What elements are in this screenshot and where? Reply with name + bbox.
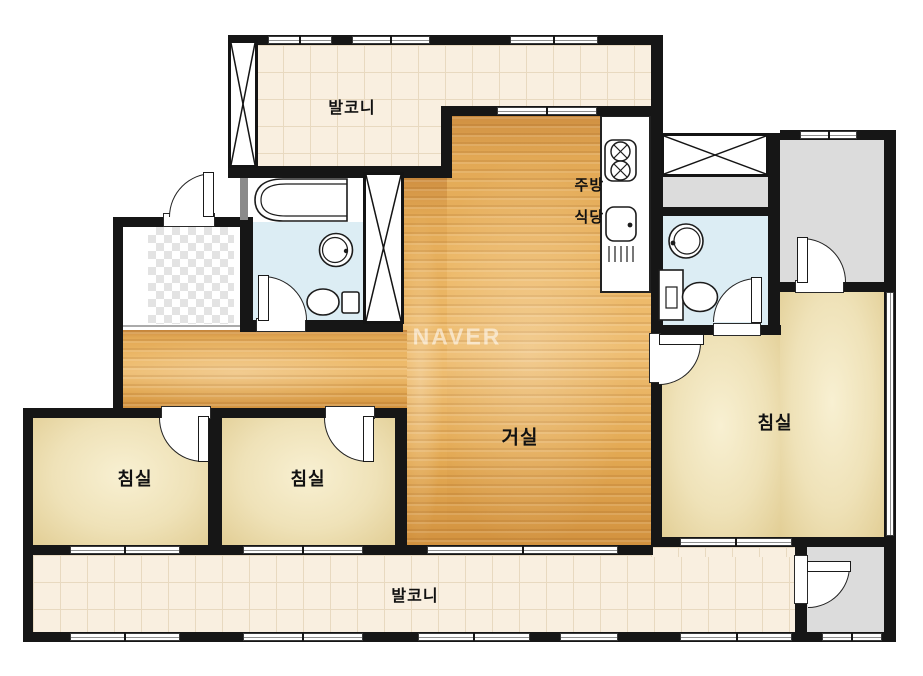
window <box>560 633 618 641</box>
window-mullion <box>851 633 853 641</box>
entry-floor-edge <box>123 325 241 327</box>
bathroom1-tub-area <box>253 176 363 222</box>
door-frame <box>713 323 761 336</box>
room-label-bedroom-center: 침실 <box>290 465 325 491</box>
window-mullion <box>299 36 301 44</box>
balcony-bottom-floor-step <box>651 547 795 557</box>
door-leaf <box>203 172 214 217</box>
window-mullion <box>124 546 126 554</box>
window-mullion <box>302 633 304 641</box>
window-mullion <box>736 633 738 641</box>
floor-plan: 발코니 주방 식당 거실 침실 침실 침실 발코니 NAVER <box>0 0 923 676</box>
room-label-balcony-bottom: 발코니 <box>391 582 438 606</box>
room-label-bedroom-left: 침실 <box>117 465 152 491</box>
window-mullion <box>124 633 126 641</box>
wall <box>23 408 33 642</box>
wall <box>651 35 663 335</box>
door-leaf <box>363 416 374 462</box>
utility-strip-floor <box>661 175 768 209</box>
door-leaf <box>797 237 808 283</box>
kitchen-counter <box>600 115 651 293</box>
wall <box>395 408 407 555</box>
window-mullion <box>553 36 555 44</box>
room-label-living: 거실 <box>502 423 539 450</box>
room-label-bedroom-right: 침실 <box>757 409 792 435</box>
door-leaf <box>198 416 209 462</box>
door-frame <box>794 555 808 604</box>
hall-floor <box>123 330 407 408</box>
door-leaf <box>258 275 269 321</box>
wall <box>768 133 780 335</box>
window-mullion <box>473 633 475 641</box>
wall-gray-segment <box>240 178 248 220</box>
entry-tile-floor <box>148 227 234 324</box>
door-leaf <box>659 334 704 345</box>
window-mullion <box>735 538 737 546</box>
wall <box>661 207 768 216</box>
wall <box>651 379 662 547</box>
wall <box>228 166 447 178</box>
naver-watermark: NAVER <box>413 324 502 351</box>
duct-x-icon <box>228 40 258 168</box>
room-label-balcony-top: 발코니 <box>328 94 375 118</box>
wall <box>222 408 407 418</box>
window <box>886 292 894 536</box>
room-label-kitchen: 주방 식당 <box>554 162 604 242</box>
window-mullion <box>546 107 548 115</box>
wall <box>441 106 452 178</box>
window-mullion <box>828 131 830 139</box>
window-mullion <box>390 36 392 44</box>
living-room-floor-left <box>403 178 447 545</box>
duct-x-icon <box>363 172 404 324</box>
window-mullion <box>302 546 304 554</box>
window-mullion <box>522 546 524 554</box>
kitchen-label-line2: 식당 <box>575 209 605 226</box>
wall <box>240 218 253 330</box>
wall <box>113 217 123 418</box>
bedroom-right-floor <box>780 292 884 537</box>
door-leaf <box>807 561 851 572</box>
wall <box>208 408 222 555</box>
duct-x-icon <box>661 133 769 177</box>
kitchen-label-line1: 주방 <box>575 177 605 194</box>
door-leaf <box>751 277 762 323</box>
